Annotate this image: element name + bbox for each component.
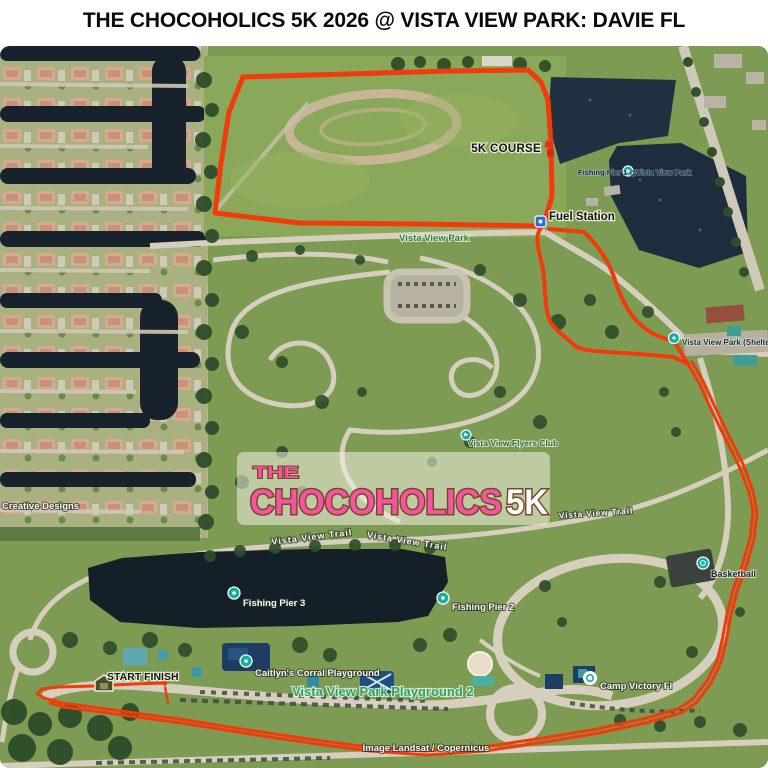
logo-chocoholics: CHOCOHOLICS [250,483,502,522]
dome-structure [468,652,492,676]
label-pier1-prefix: Fishing Pier 1 @ [578,168,637,177]
label-playground2: Vista View Park Playground 2 [292,684,474,699]
label-attribution: Image Landsat / Copernicus [363,743,490,754]
label-fuel-station: Fuel Station [549,211,615,223]
logo-5k: 5K [506,483,548,522]
pier2-icon [437,592,449,604]
label-shelter: Vista View Park (Shelter 3 [682,338,768,347]
shelter-icon [669,333,680,344]
basketball-icon [697,557,709,569]
label-5k-course: 5K COURSE [471,143,541,155]
map-canvas: 5K COURSE Fuel Station START FINISH Vist… [0,46,768,768]
label-camp-victory: Camp Victory Fl [600,681,672,692]
label-vista-view-park: Vista View Park [399,233,470,244]
caitlyn-icon [240,655,252,667]
pier3-icon [228,587,240,599]
poster-title: THE CHOCOHOLICS 5K 2026 @ VISTA VIEW PAR… [0,9,768,33]
label-flyers-club: Vista View Flyers Club [468,438,558,448]
logo-the: THE [253,463,299,482]
course-map: 5K COURSE Fuel Station START FINISH Vist… [0,46,768,768]
label-pier1-suffix: Vista View Park [636,168,692,177]
bottom-lake [88,549,448,628]
camp-victory-icon [583,671,597,685]
poster: THE CHOCOHOLICS 5K 2026 @ VISTA VIEW PAR… [0,0,768,768]
event-logo: THE CHOCOHOLICS 5K [237,452,550,525]
label-basketball: Basketball [711,569,756,579]
label-creative-designs: Creative Designs [2,501,79,512]
label-pier2: Fishing Pier 2 [452,602,514,613]
label-start-finish: START FINISH [107,671,179,683]
label-pier3: Fishing Pier 3 [243,598,305,609]
label-caitlyn: Caitlyn's Corral Playground [255,668,380,679]
fuel-station-icon [535,216,546,227]
residential-area [0,46,208,541]
